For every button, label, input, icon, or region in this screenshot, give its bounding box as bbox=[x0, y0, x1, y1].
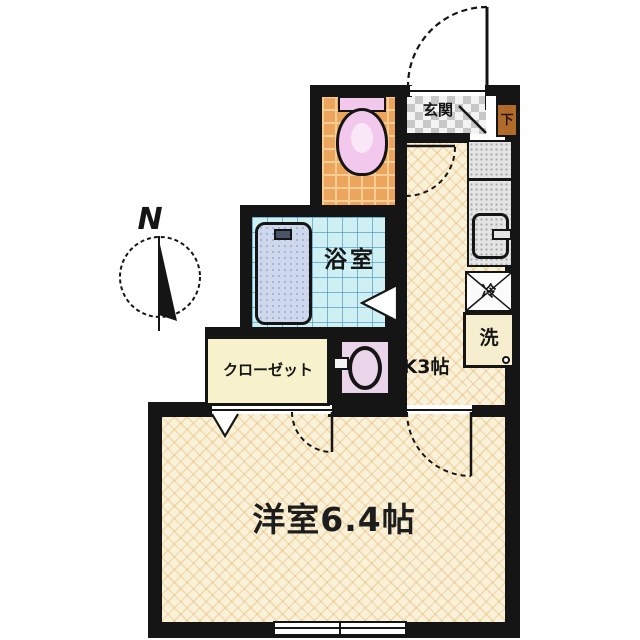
compass-n-label: N bbox=[130, 202, 170, 238]
bathroom-door-symbol bbox=[362, 285, 397, 321]
entrance-door-arc bbox=[408, 7, 487, 86]
kitchen-label: K3帖 bbox=[393, 355, 459, 379]
symbols-overlay bbox=[0, 0, 640, 640]
washer-label: 洗 bbox=[463, 315, 515, 361]
refrigerator-label: 冷 bbox=[465, 272, 513, 311]
hall-door-arc bbox=[292, 412, 332, 452]
floor-plan: 玄関 下 浴室 クローゼット K3帖 洋室6.4帖 冷 洗 N bbox=[0, 0, 640, 640]
toilet-door-arc bbox=[406, 147, 455, 196]
closet-label: クローゼット bbox=[214, 360, 322, 380]
compass-needle-fill bbox=[159, 240, 177, 321]
shoe-cabinet-label: 下 bbox=[496, 104, 518, 136]
bathroom-label: 浴室 bbox=[308, 246, 392, 274]
entrance-label: 玄関 bbox=[409, 99, 467, 121]
closet-door-symbol bbox=[212, 414, 238, 436]
kitchen-door-arc bbox=[407, 412, 471, 476]
western-room-label: 洋室6.4帖 bbox=[163, 498, 505, 540]
